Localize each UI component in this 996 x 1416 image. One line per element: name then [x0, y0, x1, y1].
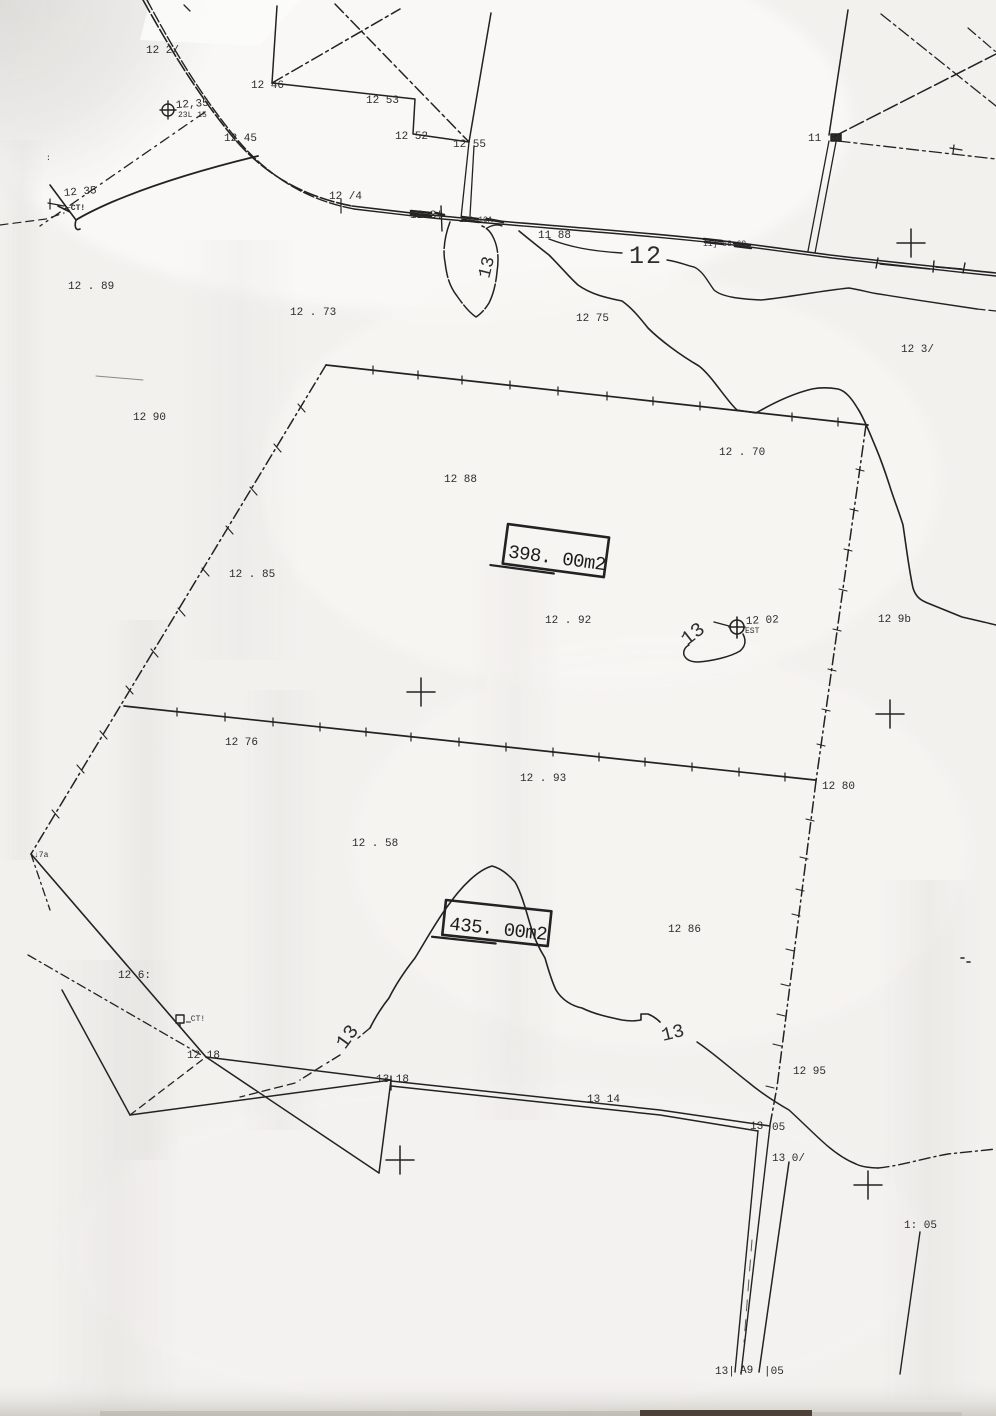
svg-text:12 75: 12 75: [576, 313, 609, 325]
svg-text:⌐CT!: ⌐CT!: [66, 204, 85, 213]
svg-text:12 53: 12 53: [366, 95, 399, 107]
svg-text:12 3/: 12 3/: [901, 344, 934, 356]
svg-text:12 . 70: 12 . 70: [719, 447, 765, 459]
svg-text:12 . 92: 12 . 92: [545, 615, 591, 627]
svg-text:13: 13: [750, 1121, 763, 1133]
svg-text:12 90: 12 90: [133, 412, 166, 424]
svg-text:12 18: 12 18: [187, 1050, 220, 1062]
svg-text:12 55: 12 55: [453, 139, 486, 151]
svg-text:12 /4: 12 /4: [329, 191, 362, 203]
svg-text:12 . 58: 12 . 58: [352, 838, 398, 850]
svg-text:12 . 73: 12 . 73: [290, 307, 336, 319]
svg-text:13 0/: 13 0/: [772, 1153, 805, 1165]
svg-text:12 . 93: 12 . 93: [520, 773, 566, 785]
svg-text:23L 15: 23L 15: [178, 111, 207, 120]
svg-text:11] 68 69: 11] 68 69: [703, 240, 746, 249]
svg-text:12 02: 12 02: [746, 614, 780, 628]
svg-text:EST: EST: [745, 627, 760, 636]
svg-text:12 86: 12 86: [668, 924, 701, 936]
svg-text:12 . 85: 12 . 85: [229, 569, 275, 581]
svg-text:12 76: 12 76: [225, 737, 258, 749]
svg-text:1: 05: 1: 05: [904, 1220, 937, 1232]
svg-text:↓7a: ↓7a: [34, 851, 49, 860]
svg-text:12 45: 12 45: [224, 133, 257, 145]
svg-text:05: 05: [772, 1122, 785, 1134]
svg-text:12 52: 12 52: [395, 131, 428, 143]
svg-text:11 88: 11 88: [538, 230, 571, 242]
svg-text:13|: 13|: [715, 1366, 735, 1378]
svg-text:13 14: 13 14: [587, 1094, 620, 1106]
svg-text::: :: [46, 154, 51, 163]
svg-text:A9: A9: [740, 1365, 753, 1377]
svg-text:12 . 89: 12 . 89: [68, 281, 114, 293]
svg-text:‗CT!: ‗CT!: [185, 1015, 205, 1024]
svg-text:11C 10A: 11C 10A: [459, 216, 493, 225]
svg-text:12 9b: 12 9b: [878, 614, 911, 626]
svg-text:12: 12: [629, 242, 663, 271]
svg-text:13 18: 13 18: [376, 1074, 409, 1086]
svg-text:12 46: 12 46: [251, 80, 284, 92]
svg-text:|05: |05: [764, 1366, 784, 1378]
svg-text:12 3!: 12 3!: [410, 210, 443, 222]
svg-text:12 95: 12 95: [793, 1066, 826, 1078]
svg-text:12 88: 12 88: [444, 474, 477, 486]
svg-text:11: 11: [808, 133, 822, 145]
svg-text:12,35: 12,35: [175, 98, 209, 112]
svg-text:12 6:: 12 6:: [118, 970, 151, 982]
svg-text:12 2/: 12 2/: [146, 45, 179, 57]
svg-text:12 80: 12 80: [822, 781, 855, 793]
